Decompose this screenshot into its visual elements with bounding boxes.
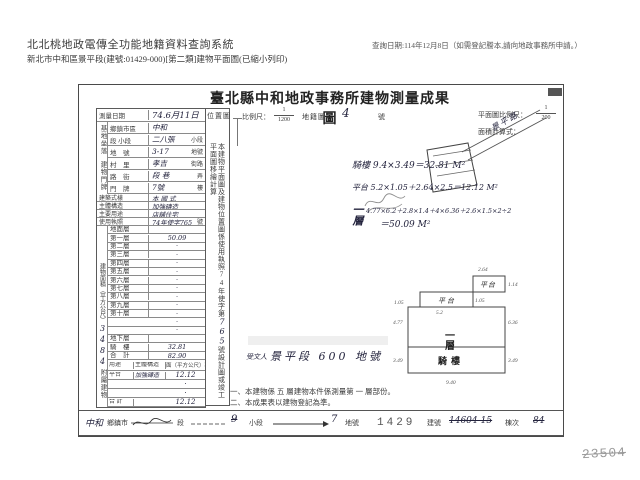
dim-arcade-left: 3.49	[392, 357, 403, 364]
floor-value: ·	[149, 260, 205, 268]
platform-b-label: 平台	[480, 281, 496, 289]
note-1: 一、本建物係 五 層建物本件係測量第 一 層部份。	[230, 386, 395, 397]
annex-row: 平台 加強磚造 12.12	[108, 371, 205, 380]
floor-value: 50.09	[149, 234, 205, 242]
annex-row: ·	[108, 389, 205, 398]
tick-mark	[237, 118, 238, 146]
attribute-value: 加強磚造	[149, 202, 203, 210]
floor-label: 合 計	[108, 352, 149, 359]
annex-row: ·	[108, 380, 205, 389]
floor-area-row: 第八層 ·	[108, 293, 205, 301]
floor-area-row: 第二層 ·	[108, 243, 205, 251]
attribute-row: 建築式樣 本 國 式	[97, 194, 205, 202]
door-row-value: 段 巷	[149, 170, 197, 181]
footer-unit-value: 84	[533, 416, 544, 426]
survey-date-value: 74.6月11日	[149, 109, 205, 121]
door-row-label: 村 里	[108, 159, 149, 169]
site-row-label: 段 小段	[108, 135, 149, 145]
floor-label: 第六層	[108, 277, 149, 284]
dim-pa-right: 1.05	[475, 298, 485, 304]
footer-unit-label: 棟次	[505, 419, 519, 427]
site-row: 鄉鎮市區 中和	[108, 122, 205, 134]
site-row-label: 地 號	[108, 147, 149, 157]
site-row-value: 中和	[149, 122, 203, 133]
side-note-strip: 本建物平面圖及建物位置圖係使用執照74年使字第765號設計圖或竣工平面圖移繪計算	[205, 108, 230, 406]
side-note-license-no: 765	[218, 318, 227, 347]
side-note-text: 本建物平面圖及建物位置圖係使用執照74年使字第765號設計圖或竣工平面圖移繪計算	[210, 143, 226, 405]
cadastre-map-label: 地籍圖	[302, 113, 326, 121]
floor-value: 82.90	[149, 352, 205, 360]
floor-area-row: 第一層 50.09	[108, 234, 205, 242]
footer-building-value: 14604-15	[449, 416, 492, 426]
floor-value: ·	[149, 268, 205, 276]
scale-numerator: 1	[283, 107, 286, 114]
note-2: 二、本成果表以建物登記為準。	[230, 397, 335, 408]
survey-date-label: 測量日期	[97, 110, 149, 120]
door-plate-group: 建物門牌 村 里 孝吉 街路 路 街 段 巷 弄 門 牌 7號 樓	[97, 158, 205, 194]
floor-area-group: 建物面積（平方公尺） 地面層 第一層 50.09 第二層 ·	[97, 226, 205, 360]
floor-label: 第七層	[108, 285, 149, 292]
site-row-suffix: 地號	[191, 147, 205, 156]
floor-label: 第八層	[108, 293, 149, 300]
floor-value: ·	[149, 318, 205, 326]
footer-parcel-label: 地號	[345, 419, 359, 427]
footer-section-value: 9	[231, 414, 237, 425]
floor-label: 第五層	[108, 268, 149, 275]
document-subtitle: 新北市中和區景平段(建號:01429-000)[第二類]建物平面圖(已縮小列印)	[27, 53, 287, 65]
dim-floor-left: 4.77	[393, 319, 403, 326]
attribute-row: 主體構造 加強磚造	[97, 202, 205, 210]
scale-denominator: 1200	[278, 117, 290, 124]
building-info-table: 測量日期 74.6月11日 基地坐落 鄉鎮市區 中和 段 小段 二八張 小段	[96, 108, 206, 408]
dim-pa-bottom: 5.2	[436, 310, 443, 316]
door-row: 門 牌 7號 樓	[108, 182, 205, 194]
site-row-value: 3-17	[149, 147, 191, 156]
annex-use: 平台	[108, 372, 134, 379]
tick-mark	[233, 118, 242, 119]
sheet-number: 4	[342, 106, 350, 120]
attribute-suffix: 號	[197, 218, 205, 226]
floor-area-row: 第七層 ·	[108, 285, 205, 293]
door-group-label: 建物門牌	[97, 158, 108, 194]
annex-use: 合 計	[108, 399, 134, 406]
attribute-label: 使用執照	[97, 218, 149, 226]
ink-blot	[548, 88, 562, 96]
annex-group-label: 附屬建物	[97, 360, 108, 407]
attribute-value: 本 國 式	[149, 194, 203, 202]
attribute-label: 主要用途	[97, 210, 149, 218]
annex-area: 12.12	[166, 398, 205, 406]
door-row-suffix: 樓	[197, 183, 205, 192]
strike-scribble	[131, 415, 173, 431]
fraction-bar	[274, 115, 294, 116]
floor-area-row: 第三層 ·	[108, 251, 205, 259]
attribute-value: 店舖住宅	[149, 210, 203, 218]
side-note-pre: 本建物平面圖及建物位置圖係使用執照74年使字第	[218, 143, 226, 318]
floor-value: 32.81	[149, 343, 205, 351]
footer-subsection-label: 小段	[249, 419, 263, 427]
system-title: 北北桃地政電傳全功能地籍資料查詢系統	[27, 36, 234, 52]
floor-value: ·	[149, 302, 205, 310]
annex-area: 12.12	[166, 371, 205, 379]
footer-parcel-number: 1429	[377, 417, 415, 429]
floor-value: ·	[149, 243, 205, 251]
annex-group: 附屬建物 用途 主體構造 面（平方公尺）積 平台 加強磚造 12.12	[97, 360, 205, 407]
site-group-label: 基地坐落	[97, 122, 108, 158]
floor-area-row: 騎 樓 32.81	[108, 343, 205, 351]
attribute-label: 建築式樣	[97, 194, 149, 202]
location-map-label: 位置圖	[207, 112, 231, 120]
dim-floor-right: 6.36	[508, 320, 518, 326]
footer-town-value: 中和	[85, 416, 103, 429]
annex-row: 合 計 12.12	[108, 398, 205, 407]
attribute-row: 使用執照 74年使字765 號	[97, 218, 205, 226]
dim-arcade-right: 3.49	[507, 357, 518, 364]
site-row-suffix: 小段	[191, 135, 205, 144]
floor-label: 第九層	[108, 302, 149, 309]
floor-plan: 平台 平台 一層 騎樓 1.05 5.2 1.05 2.64 1.14 4.77…	[390, 258, 565, 398]
dim-pb-right: 1.14	[508, 281, 518, 288]
ratio-label: 比例尺：	[242, 113, 270, 121]
floor-label: 一層	[443, 330, 455, 351]
sheet-unit: 號	[378, 113, 385, 121]
floor-area-row: 第六層 ·	[108, 276, 205, 284]
door-row: 村 里 孝吉 街路	[108, 158, 205, 170]
calc-platform: 平台 5.2×1.05＋2.64×2.5＝12.12 M²	[352, 182, 498, 193]
attribute-label: 主體構造	[97, 202, 149, 210]
annex-structure: 加強磚造	[134, 372, 166, 379]
floor-label: 第十層	[108, 310, 149, 317]
survey-date-row: 測量日期 74.6月11日	[97, 109, 205, 122]
footer-building-label: 建號	[427, 419, 441, 427]
calc-floor-label: 一層	[349, 204, 365, 226]
annex-header-use: 用途	[108, 362, 134, 369]
footer-section-label: 段	[177, 419, 184, 427]
floor-area-row: 合 計 82.90	[108, 352, 205, 360]
annex-header-structure: 主體構造	[134, 362, 166, 369]
calc-arcade: 騎樓 9.4×3.49＝32.81 M²	[352, 158, 465, 171]
floor-label: 第四層	[108, 260, 149, 267]
floor-area-row: ·	[108, 318, 205, 326]
site-row: 地 號 3-17 地號	[108, 146, 205, 158]
platform-a-label: 平台	[438, 297, 456, 305]
door-row-label: 路 街	[108, 171, 149, 181]
site-row-value: 二八張	[149, 134, 191, 145]
attribute-row: 主要用途 店舖住宅	[97, 210, 205, 218]
floor-value: ·	[149, 327, 205, 335]
calc-floor-formula: 4.77×6.2＋2.8×1.4＋4×6.36＋2.6×1.5×2÷2	[366, 205, 511, 215]
dim-bottom: 9.40	[446, 379, 456, 386]
footer-town-label: 鄉鎮市	[107, 419, 128, 427]
door-row: 路 街 段 巷 弄	[108, 170, 205, 182]
floor-value: ·	[149, 293, 205, 301]
floor-area-row: 地下層	[108, 335, 205, 343]
floor-value: ·	[149, 310, 205, 318]
site-row-label: 鄉鎮市區	[108, 123, 149, 133]
arrow-line	[273, 419, 329, 429]
site-note-prefix: 受文人	[246, 352, 267, 362]
floor-label: 地下層	[108, 335, 149, 342]
annex-area: ·	[166, 380, 205, 388]
door-row-suffix: 街路	[191, 159, 205, 168]
annex-header-area: 面（平方公尺）積	[166, 361, 205, 369]
faint-stamp	[248, 336, 388, 345]
corner-number: 23504	[582, 445, 627, 462]
floor-label: 地面層	[108, 226, 149, 233]
door-row-label: 門 牌	[108, 183, 149, 193]
footer-subsection-value: 7	[331, 414, 337, 425]
floor-value: ·	[149, 285, 205, 293]
floor-label: 第一層	[108, 235, 149, 242]
door-row-suffix: 弄	[197, 171, 205, 180]
door-row-value: 7號	[149, 182, 197, 193]
attribute-value: 74年使字765	[149, 218, 197, 226]
floor-area-row: ·	[108, 327, 205, 335]
floor-label: 第二層	[108, 243, 149, 250]
site-row: 段 小段 二八張 小段	[108, 134, 205, 146]
floor-label: 第三層	[108, 251, 149, 258]
arrow-scribble	[191, 419, 231, 429]
floor-value: ·	[149, 276, 205, 284]
annex-header-row: 用途 主體構造 面（平方公尺）積	[108, 360, 205, 371]
door-row-value: 孝吉	[149, 158, 191, 169]
floor-value: ·	[149, 251, 205, 259]
arcade-label: 騎樓	[438, 355, 464, 366]
floor-area-row: 第九層 ·	[108, 302, 205, 310]
floor-area-row: 第五層 ·	[108, 268, 205, 276]
floor-area-row: 地面層	[108, 226, 205, 234]
site-location-group: 基地坐落 鄉鎮市區 中和 段 小段 二八張 小段 地 號 3-17	[97, 122, 205, 158]
query-date: 查詢日期:114年12月8日（如需登記謄本,請向地政事務所申請。）	[372, 40, 582, 51]
dim-pa-left: 1.05	[394, 300, 404, 306]
location-scale-fraction: 1 1200	[274, 107, 294, 124]
footer-strip: 中和 鄉鎮市 段 9 小段 7 地號 1429 建號 14604-15 棟次 8…	[79, 410, 563, 436]
calc-floor-result: ＝50.09 M²	[380, 217, 430, 230]
floor-area-row: 第四層 ·	[108, 260, 205, 268]
site-note-text: 景平段 600 地號	[270, 348, 383, 364]
attribute-rows: 建築式樣 本 國 式 主體構造 加強磚造 主要用途 店舖住宅 使用執照 74年使…	[97, 194, 205, 226]
dim-pb-top: 2.64	[478, 266, 488, 273]
floor-area-row: 第十層 ·	[108, 310, 205, 318]
annex-area: ·	[166, 389, 205, 397]
floor-label: 騎 樓	[108, 344, 149, 351]
